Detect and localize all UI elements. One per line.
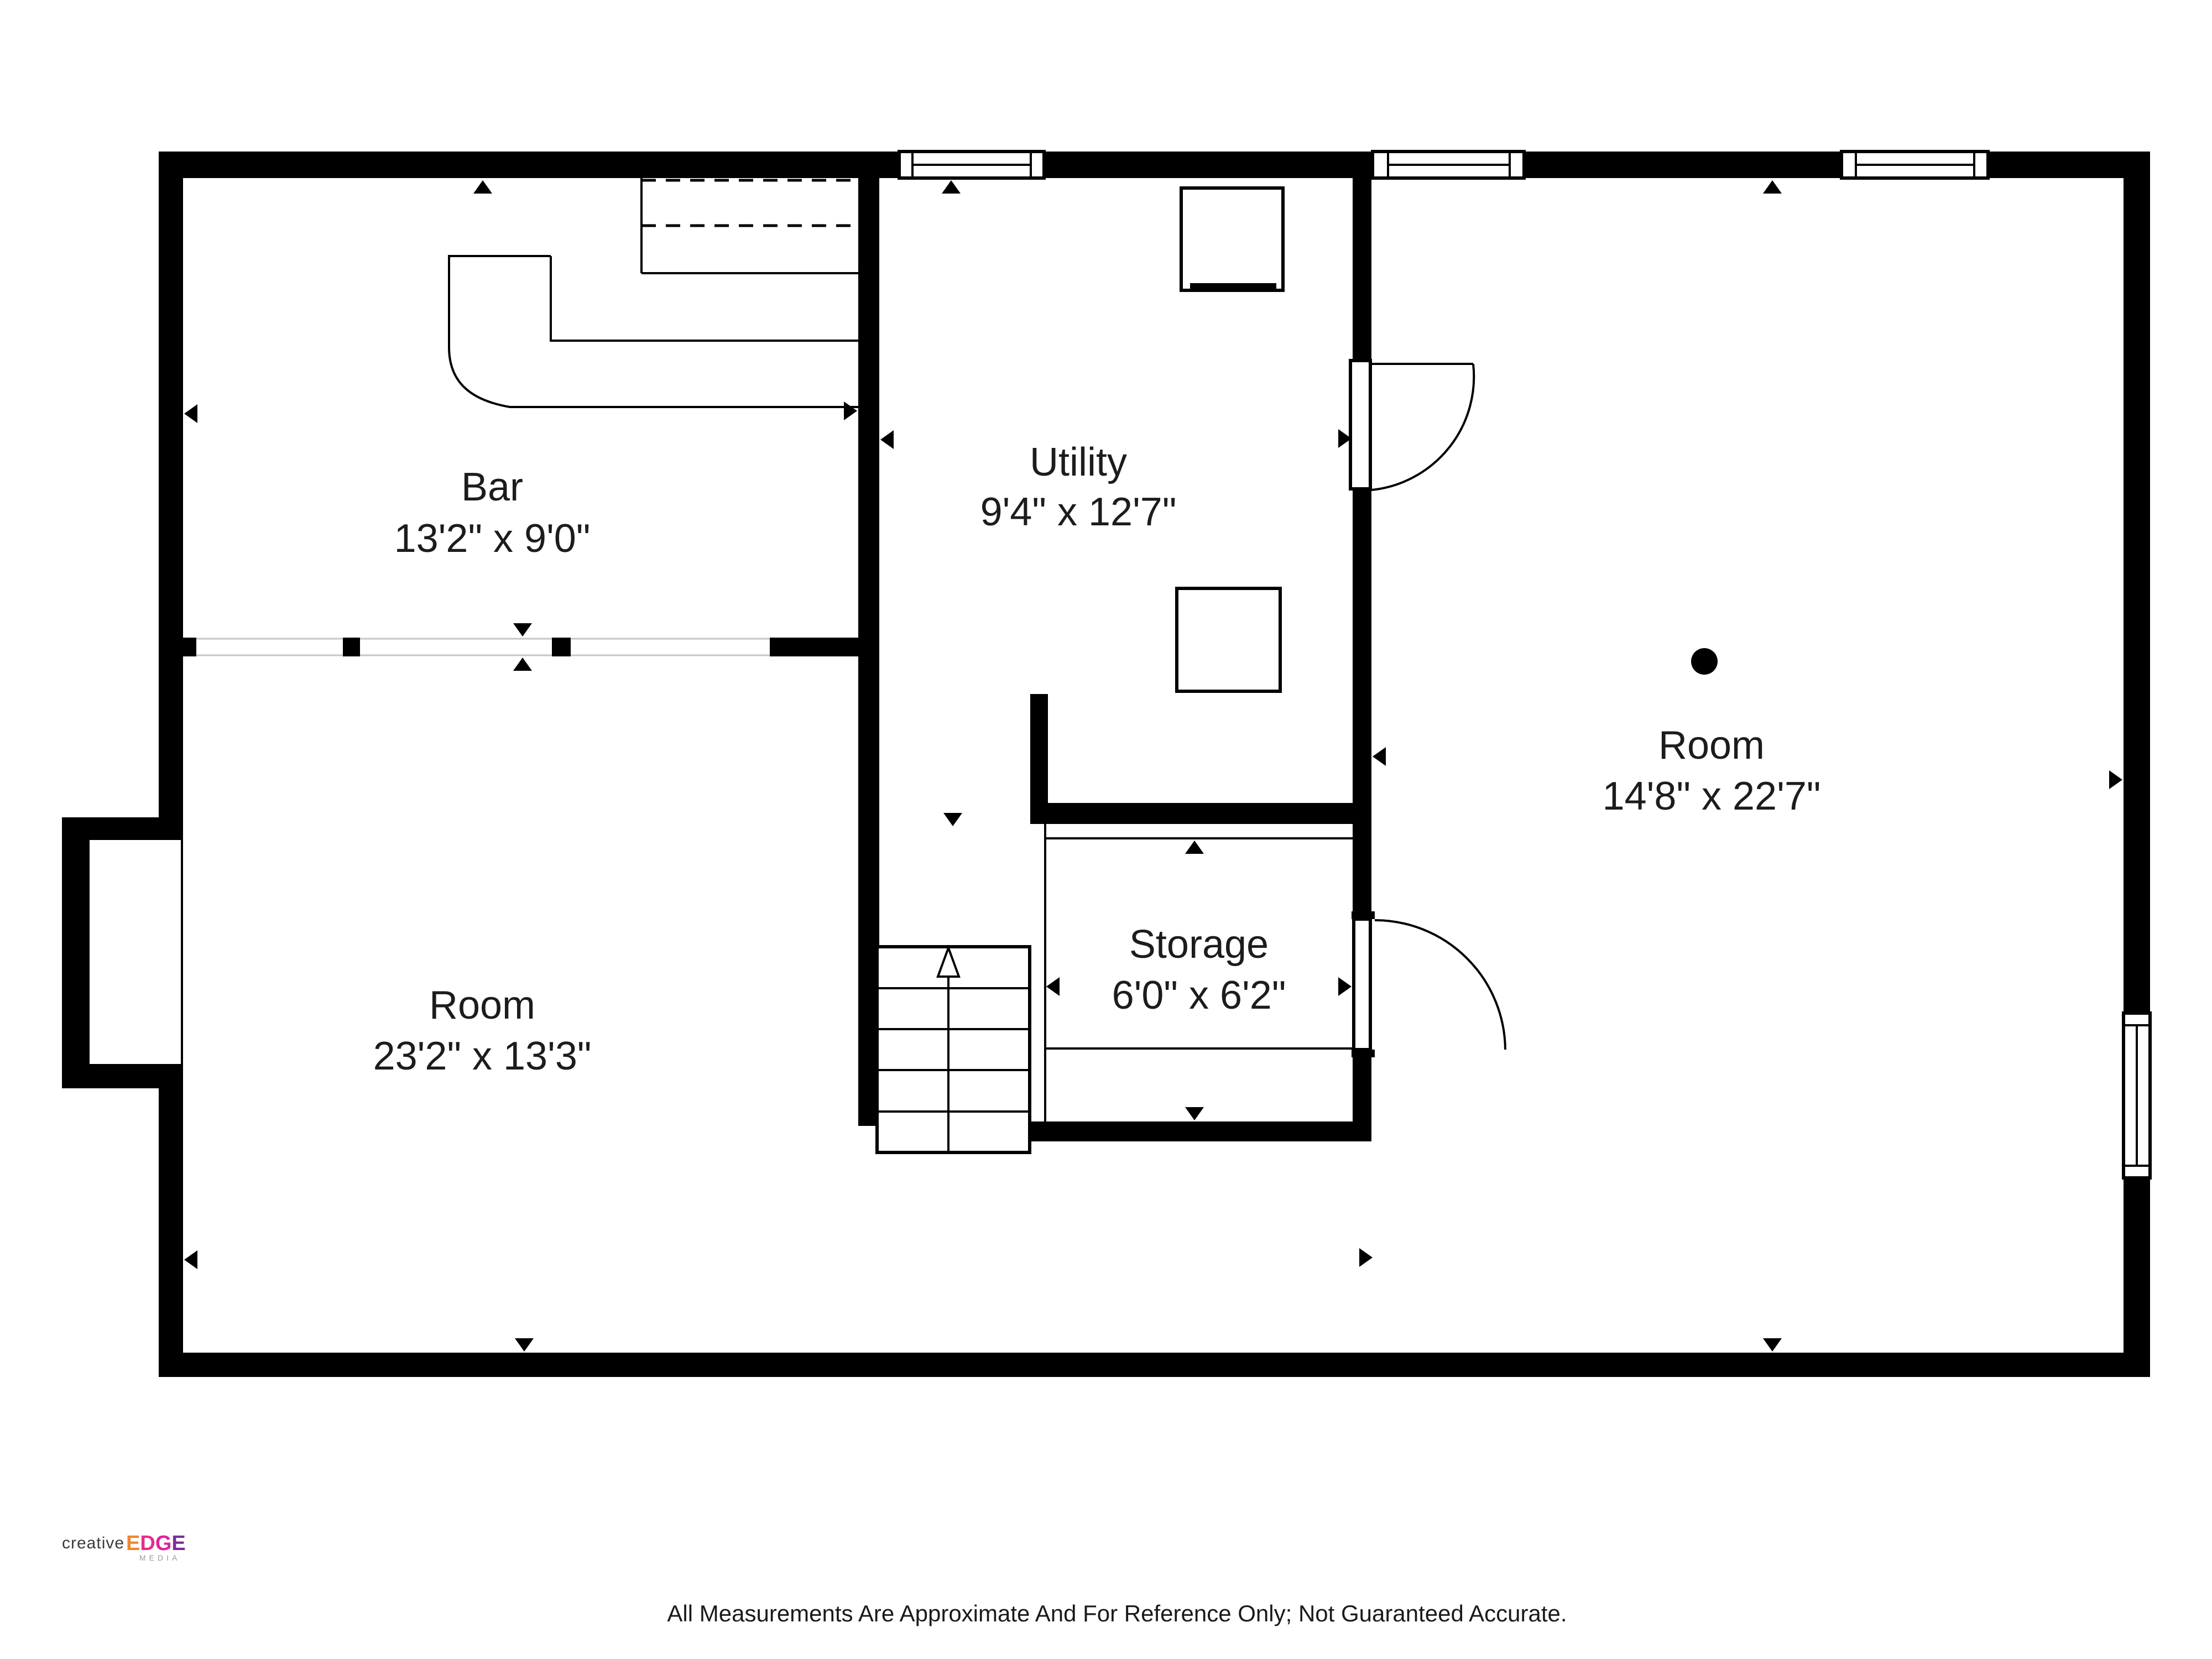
logo-creative-edge-media: creative EDGE MEDIA [62,1532,186,1562]
arrow-down-icon [515,1338,534,1352]
wall-right-upper [2124,152,2150,1013]
left-bumpout-walls [62,817,183,1088]
dimension-arrows [184,180,2122,1352]
arrow-down-icon [1763,1338,1782,1352]
room-dims-room-right: 14'8" x 22'7" [1603,774,1821,818]
window-top-3 [1841,152,1988,178]
arrow-left-icon [184,1250,197,1269]
room-dims-storage: 6'0" x 6'2" [1112,973,1286,1018]
room-labels: Bar 13'2" x 9'0" Utility 9'4" x 12'7" Ro… [373,440,1821,1078]
fixture-water-heater [1181,188,1283,290]
logo-word-creative: creative [62,1534,124,1552]
fixture-appliance [1177,588,1280,691]
arrow-left-icon [1046,977,1060,996]
arrow-left-icon [184,404,197,423]
arrow-left-icon [880,430,894,449]
windows [899,152,2150,1178]
arrow-up-icon [1185,841,1204,854]
door-storage [1354,919,1505,1050]
outer-walls [62,152,2150,1377]
stairs-lower [877,947,1030,1152]
arrow-up-icon [513,658,532,671]
arrow-right-icon [1338,977,1352,996]
doors [1350,361,1505,1050]
wall-right-lower [2124,1178,2150,1377]
arrow-down-icon [513,623,532,637]
footer-disclaimer: All Measurements Are Approximate And For… [667,1600,1567,1626]
floor-plan: Bar 13'2" x 9'0" Utility 9'4" x 12'7" Ro… [0,0,2212,1659]
door-utility [1350,361,1474,490]
bar-counter [449,256,858,407]
wall-storage-bottom [1030,1121,1371,1141]
arrow-right-icon [2109,770,2122,789]
arrow-left-icon [1373,747,1386,766]
wall-storage-top [1030,803,1371,824]
wall-bottom [159,1353,2150,1377]
utility-fixtures [1177,188,1283,691]
window-top-1 [899,152,1044,178]
room-dims-utility: 9'4" x 12'7" [980,490,1177,534]
room-label-utility: Utility [1030,440,1127,484]
room-dims-bar: 13'2" x 9'0" [394,517,591,561]
arrow-right-icon [844,401,857,420]
window-right [2124,1013,2150,1178]
arrow-up-icon [1763,180,1782,194]
door-storage-swing-arc [1375,920,1505,1050]
storage-room-lines [1045,824,1353,1121]
wall-left-upper [159,152,183,840]
arrow-up-icon [942,180,961,194]
door-utility-swing-arc [1371,364,1474,490]
arrow-up-icon [473,180,492,194]
room-label-room-right: Room [1658,723,1765,768]
floor-plan-page: Bar 13'2" x 9'0" Utility 9'4" x 12'7" Ro… [0,0,2212,1659]
stairs-upper [641,178,858,273]
room-dims-room-left: 23'2" x 13'3" [373,1034,592,1078]
arrow-down-icon [943,813,962,826]
wall-left-lower [159,1064,183,1377]
room-label-bar: Bar [461,465,523,509]
arrow-down-icon [1185,1107,1204,1120]
wall-bar-room-divider [183,638,858,656]
column-dot [1691,648,1718,675]
room-label-room-left: Room [429,983,535,1027]
logo-word-media: MEDIA [139,1553,180,1562]
window-top-2 [1373,152,1524,178]
room-label-storage: Storage [1129,922,1269,967]
logo-word-edge: EDGE [126,1532,186,1555]
arrow-right-icon [1359,1248,1373,1267]
